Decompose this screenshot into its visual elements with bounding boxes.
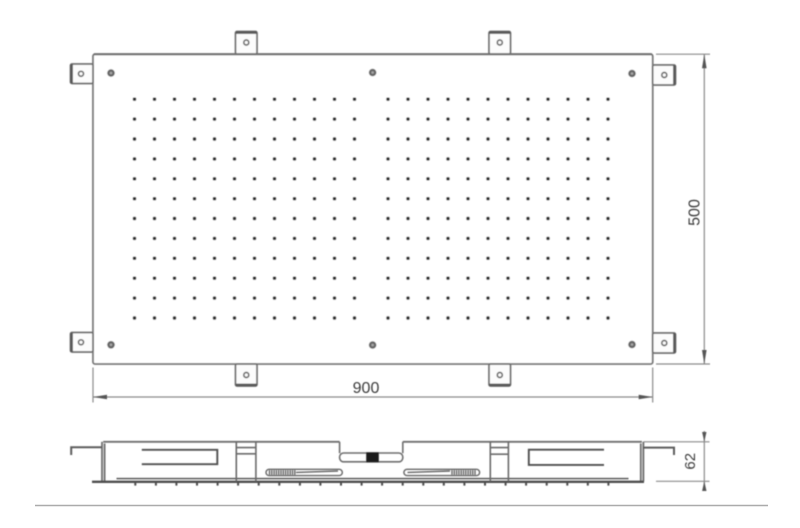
svg-text:500: 500 xyxy=(687,199,704,226)
svg-text:62: 62 xyxy=(682,453,699,470)
svg-text:900: 900 xyxy=(353,380,380,397)
